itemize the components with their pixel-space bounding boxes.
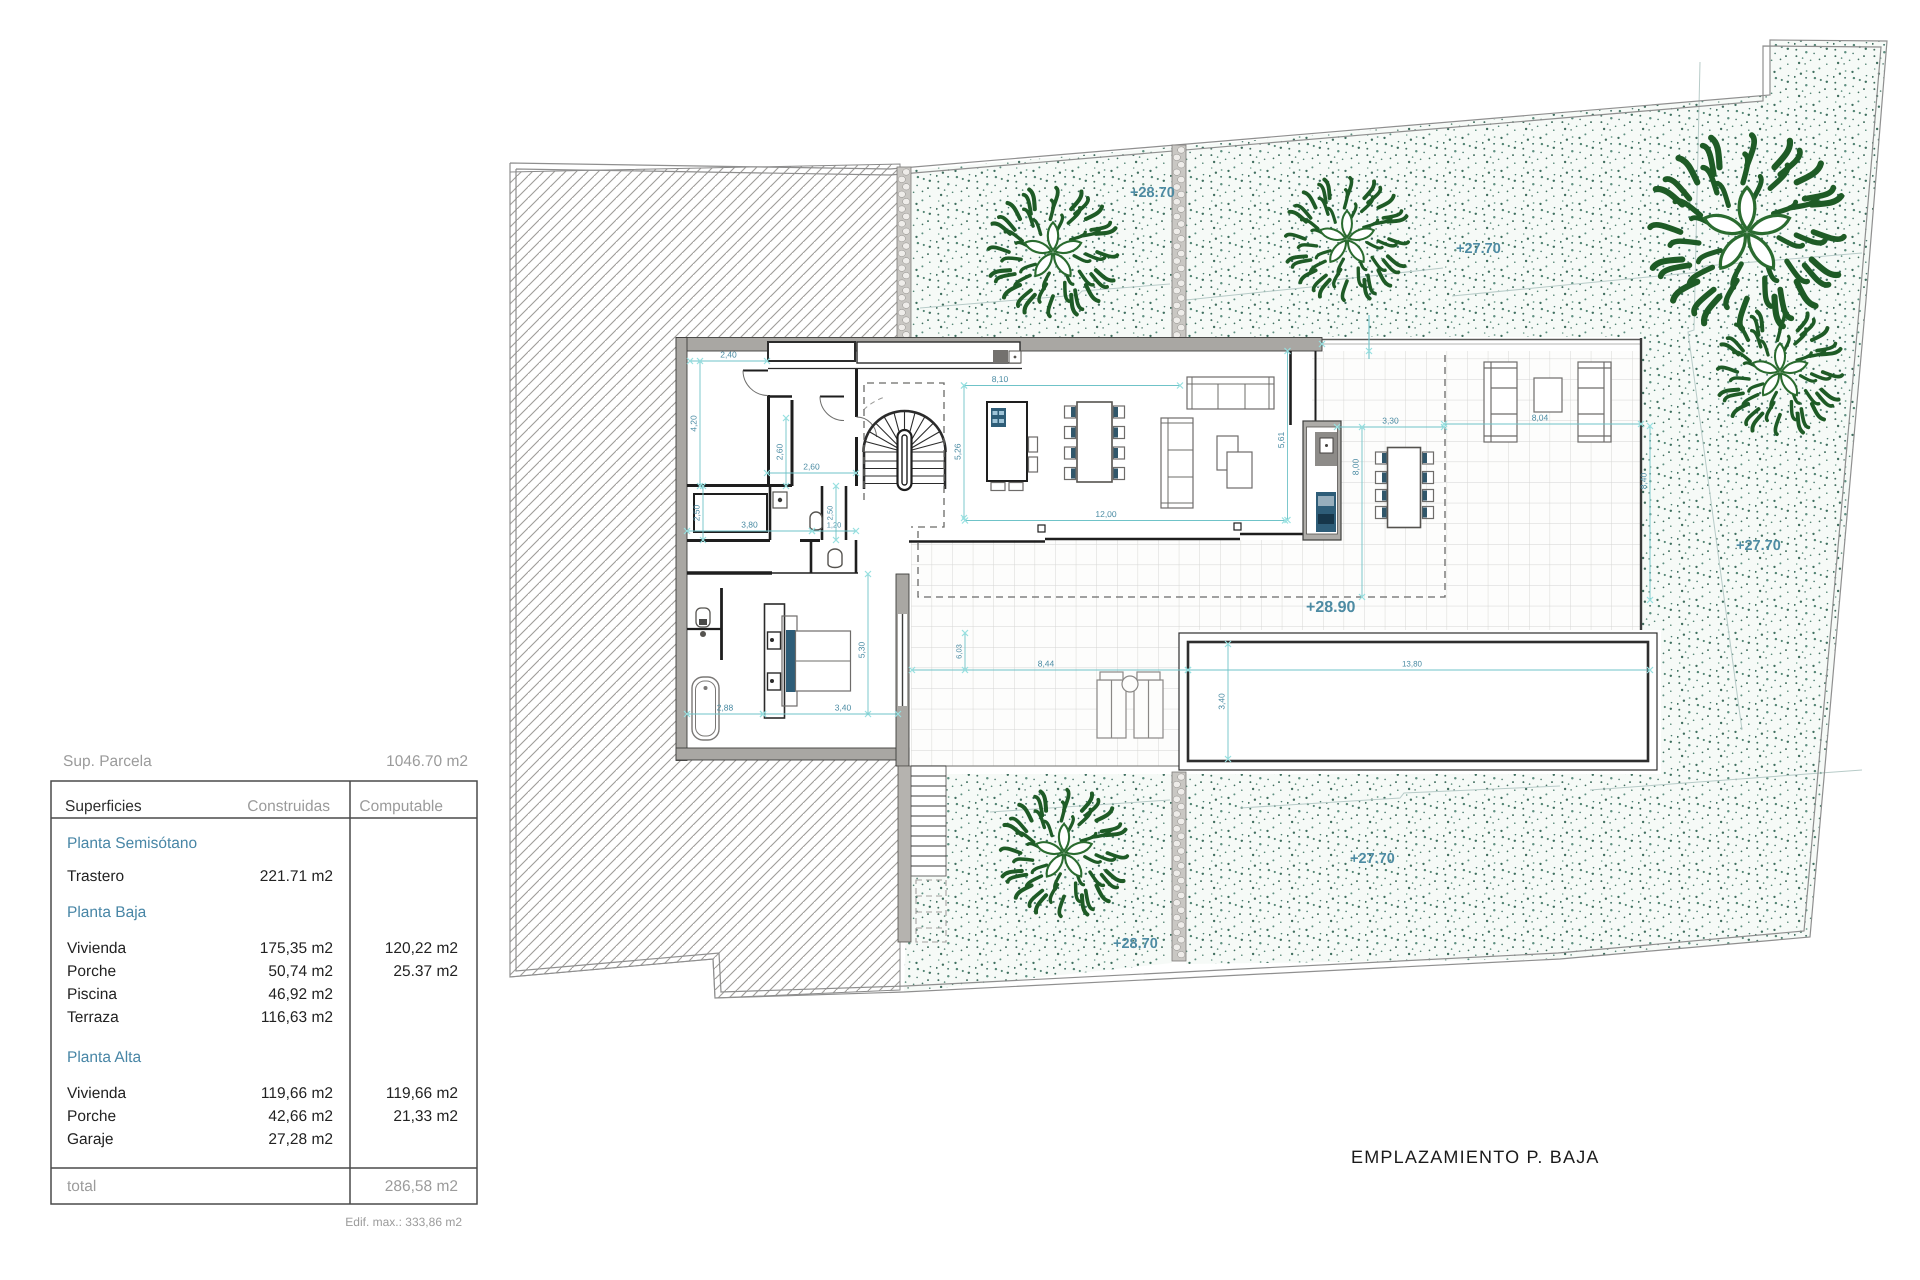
svg-text:1,20: 1,20 [827, 521, 842, 530]
svg-text:EMPLAZAMIENTO P. BAJA: EMPLAZAMIENTO P. BAJA [1351, 1147, 1600, 1167]
svg-text:Vivienda: Vivienda [67, 940, 127, 957]
svg-text:2,50: 2,50 [826, 506, 835, 521]
svg-text:+28.90: +28.90 [1306, 599, 1355, 616]
svg-text:3,40: 3,40 [1217, 693, 1227, 710]
svg-text:Porche: Porche [67, 1108, 116, 1125]
svg-text:Computable: Computable [359, 798, 443, 815]
svg-text:8,40: 8,40 [1639, 472, 1649, 489]
svg-text:+27.70: +27.70 [1456, 241, 1501, 257]
svg-text:Terraza: Terraza [67, 1009, 119, 1026]
svg-text:Planta Semisótano: Planta Semisótano [67, 835, 197, 852]
svg-text:3,80: 3,80 [741, 520, 758, 530]
svg-text:Sup. Parcela: Sup. Parcela [63, 753, 152, 770]
svg-text:Planta Baja: Planta Baja [67, 904, 147, 921]
svg-text:221.71 m2: 221.71 m2 [260, 868, 333, 885]
svg-text:5,26: 5,26 [953, 443, 963, 460]
svg-text:3,30: 3,30 [1382, 416, 1399, 426]
svg-text:25.37 m2: 25.37 m2 [393, 963, 458, 980]
svg-text:+28.70: +28.70 [1113, 936, 1158, 952]
svg-text:1046.70 m2: 1046.70 m2 [386, 753, 468, 770]
svg-text:286,58 m2: 286,58 m2 [385, 1178, 458, 1195]
svg-text:8,10: 8,10 [992, 374, 1009, 384]
svg-text:+27.70: +27.70 [1736, 538, 1781, 554]
svg-text:116,63 m2: 116,63 m2 [261, 1009, 333, 1026]
svg-text:46,92 m2: 46,92 m2 [268, 986, 333, 1003]
svg-text:Edif. max.: 333,86 m2: Edif. max.: 333,86 m2 [345, 1215, 462, 1229]
svg-text:21,33 m2: 21,33 m2 [393, 1108, 458, 1125]
svg-text:50,74 m2: 50,74 m2 [268, 963, 333, 980]
svg-text:27,28 m2: 27,28 m2 [268, 1131, 333, 1148]
svg-text:42,66 m2: 42,66 m2 [268, 1108, 333, 1125]
svg-text:+27.70: +27.70 [1350, 851, 1395, 867]
svg-text:6,03: 6,03 [955, 644, 964, 659]
svg-text:120,22 m2: 120,22 m2 [385, 940, 458, 957]
svg-text:175,35 m2: 175,35 m2 [260, 940, 333, 957]
svg-text:2,88: 2,88 [717, 703, 734, 713]
svg-text:total: total [67, 1178, 96, 1195]
svg-text:3,40: 3,40 [835, 703, 852, 713]
svg-text:Piscina: Piscina [67, 986, 117, 1003]
svg-text:Superficies: Superficies [65, 798, 142, 815]
svg-text:119,66 m2: 119,66 m2 [261, 1085, 333, 1102]
svg-text:+28.70: +28.70 [1130, 185, 1175, 201]
svg-text:2,50: 2,50 [692, 504, 702, 521]
svg-text:2,60: 2,60 [775, 443, 785, 460]
svg-text:8,00: 8,00 [1351, 458, 1361, 475]
svg-text:8,04: 8,04 [1532, 413, 1549, 423]
svg-text:Vivienda: Vivienda [67, 1085, 127, 1102]
svg-text:Planta Alta: Planta Alta [67, 1049, 141, 1066]
svg-text:4,20: 4,20 [689, 415, 699, 432]
svg-text:Construidas: Construidas [247, 798, 330, 815]
svg-text:5,30: 5,30 [857, 641, 867, 658]
svg-text:Garaje: Garaje [67, 1131, 114, 1148]
svg-text:12,00: 12,00 [1095, 509, 1117, 519]
svg-text:Trastero: Trastero [67, 868, 124, 885]
svg-text:13,80: 13,80 [1402, 660, 1423, 669]
svg-text:2,60: 2,60 [803, 462, 820, 472]
svg-text:Porche: Porche [67, 963, 116, 980]
svg-text:8,44: 8,44 [1038, 659, 1055, 669]
svg-text:2,40: 2,40 [720, 350, 737, 360]
svg-text:5,61: 5,61 [1276, 431, 1286, 448]
svg-text:119,66 m2: 119,66 m2 [386, 1085, 458, 1102]
